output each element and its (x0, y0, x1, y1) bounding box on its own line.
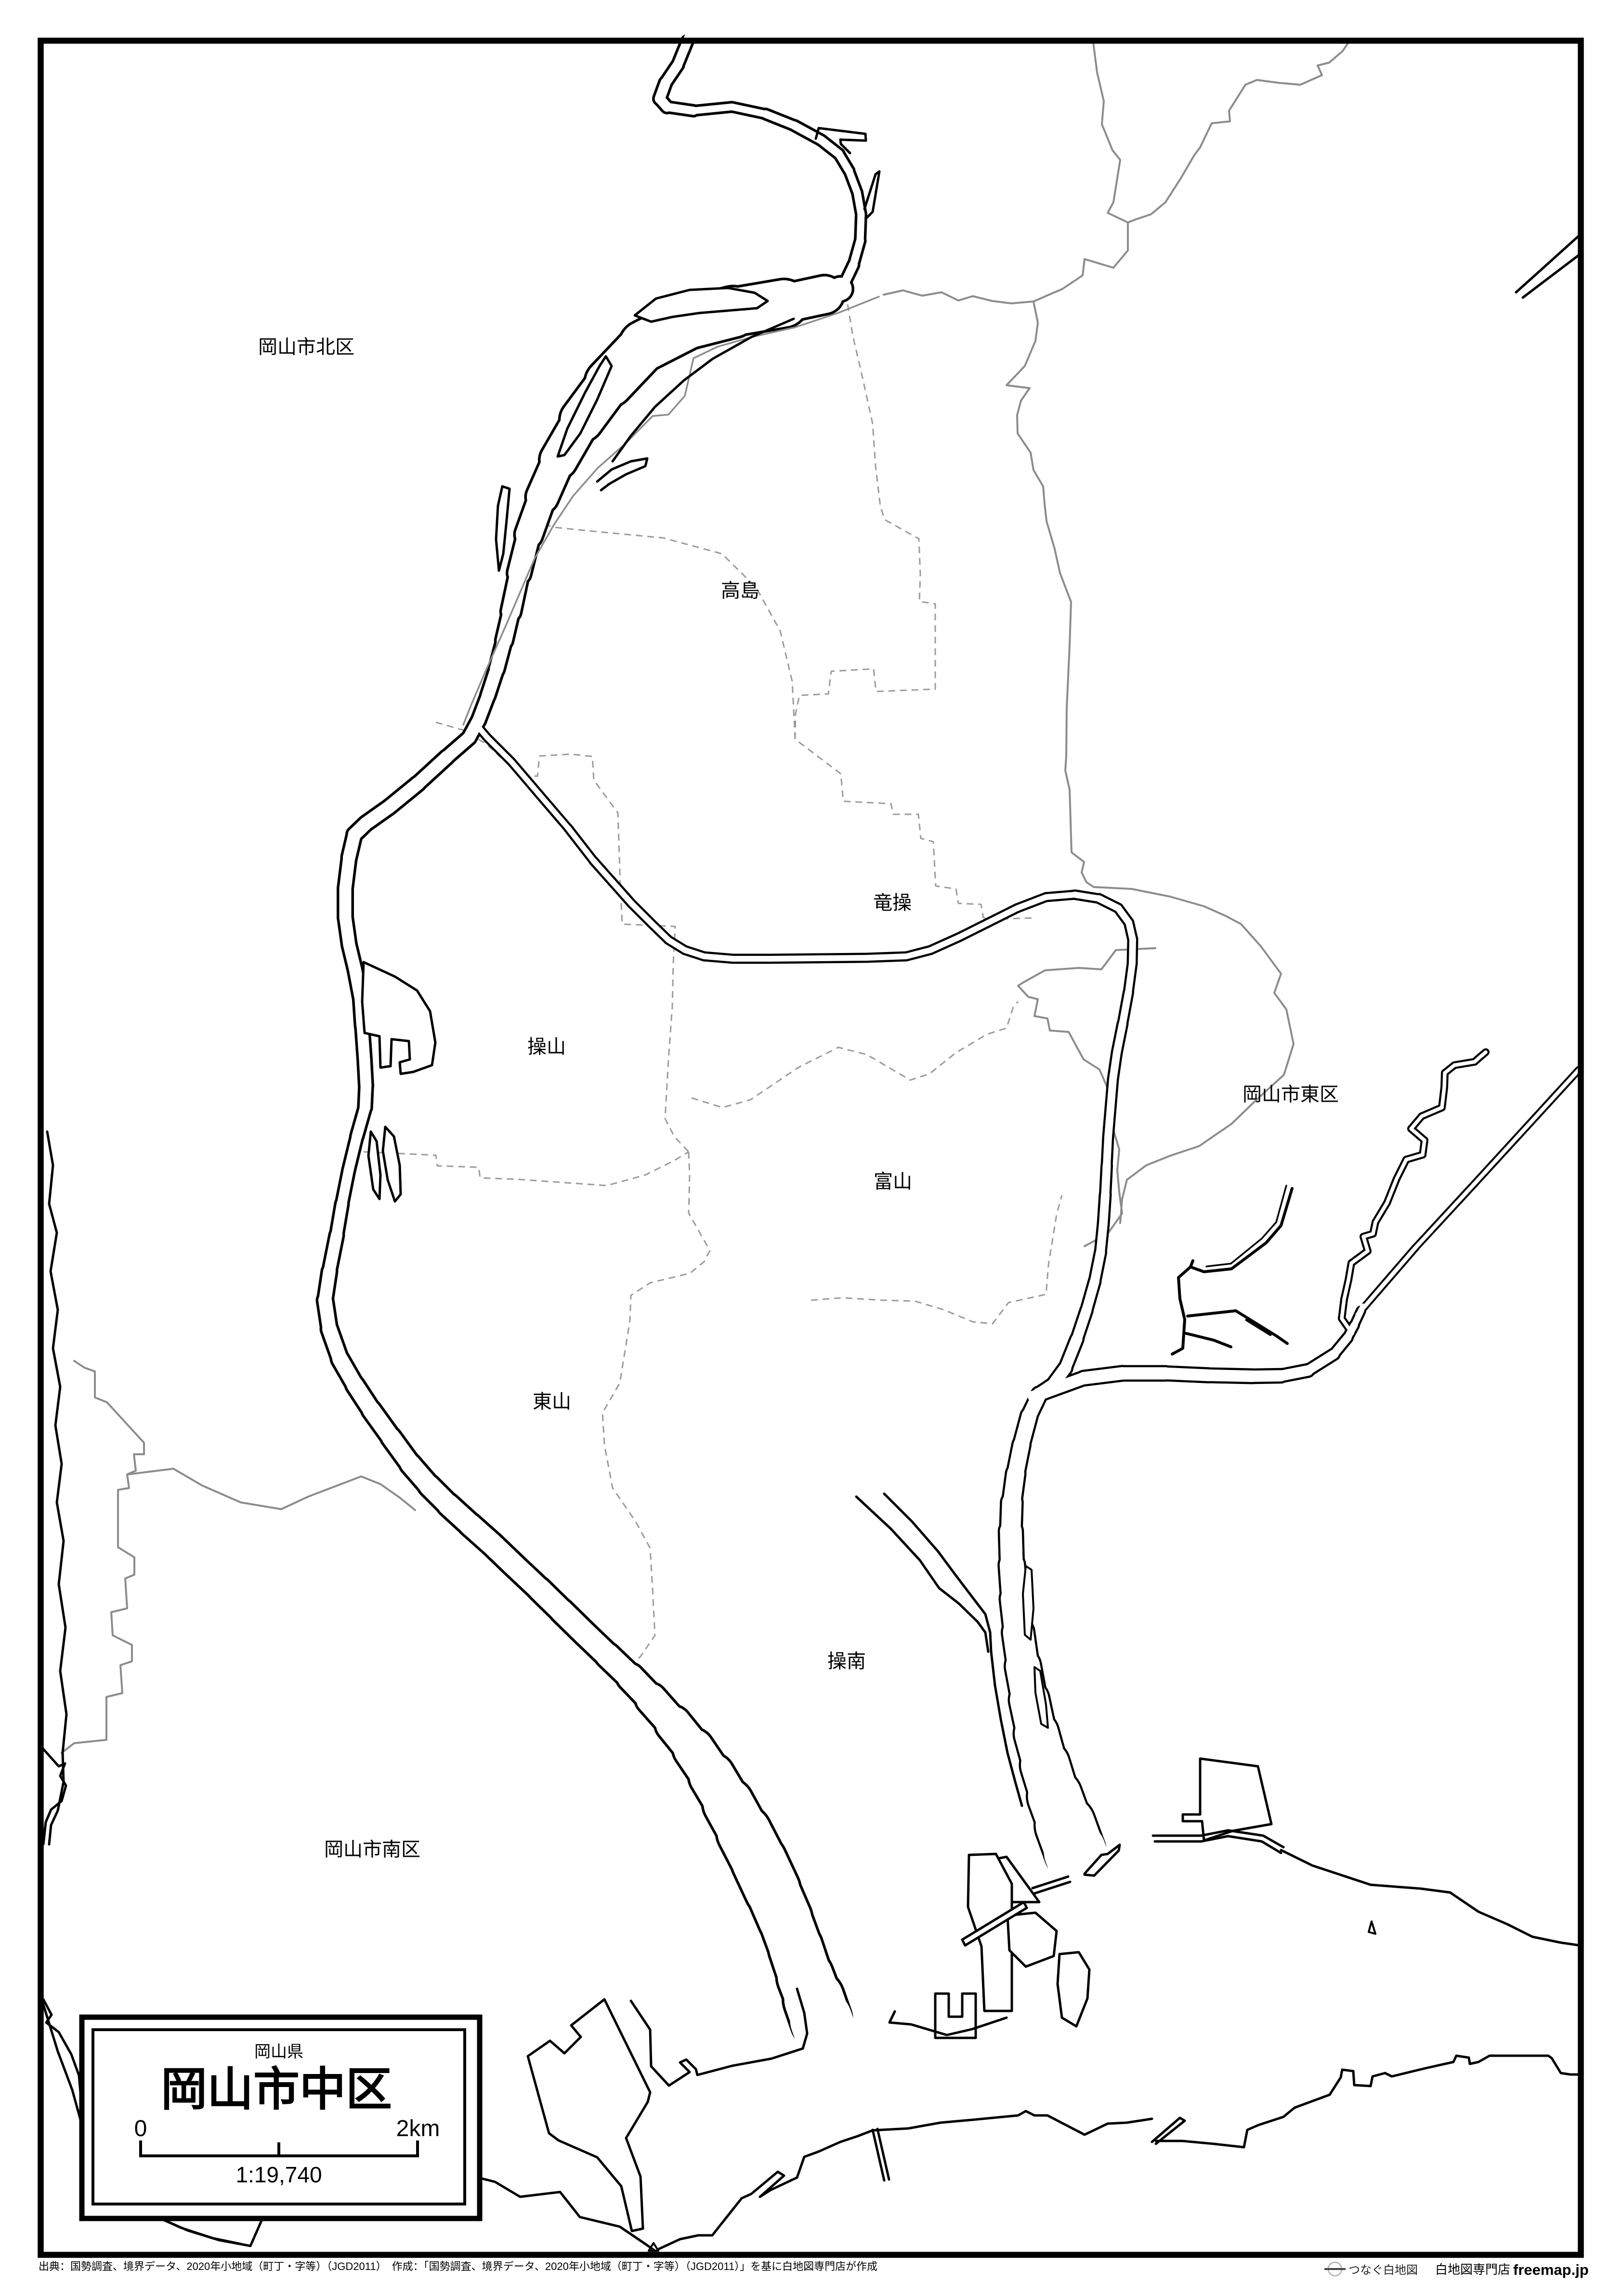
svg-text:2km: 2km (396, 2116, 440, 2141)
svg-text:竜操: 竜操 (873, 892, 912, 913)
svg-text:岡山市中区: 岡山市中区 (161, 2064, 392, 2115)
svg-text:1:19,740: 1:19,740 (235, 2162, 322, 2187)
svg-text:操山: 操山 (527, 1036, 566, 1057)
svg-text:白地図専門店: 白地図専門店 (1435, 2262, 1510, 2277)
svg-text:出典：国勢調査、境界データ、2020年小地域（町丁・字等）（: 出典：国勢調査、境界データ、2020年小地域（町丁・字等）（JGD2011） 作… (39, 2260, 877, 2272)
svg-text:0: 0 (134, 2116, 147, 2141)
svg-text:高島: 高島 (721, 580, 759, 601)
svg-text:岡山県: 岡山県 (254, 2043, 303, 2061)
svg-text:freemap.jp: freemap.jp (1513, 2261, 1589, 2278)
svg-text:岡山市東区: 岡山市東区 (1243, 1084, 1339, 1105)
svg-text:富山: 富山 (874, 1171, 912, 1192)
svg-text:東山: 東山 (533, 1391, 571, 1412)
svg-text:岡山市南区: 岡山市南区 (324, 1839, 420, 1860)
svg-text:岡山市北区: 岡山市北区 (258, 337, 354, 358)
svg-text:操南: 操南 (827, 1651, 866, 1672)
svg-text:つなぐ白地図: つなぐ白地図 (1348, 2264, 1418, 2277)
